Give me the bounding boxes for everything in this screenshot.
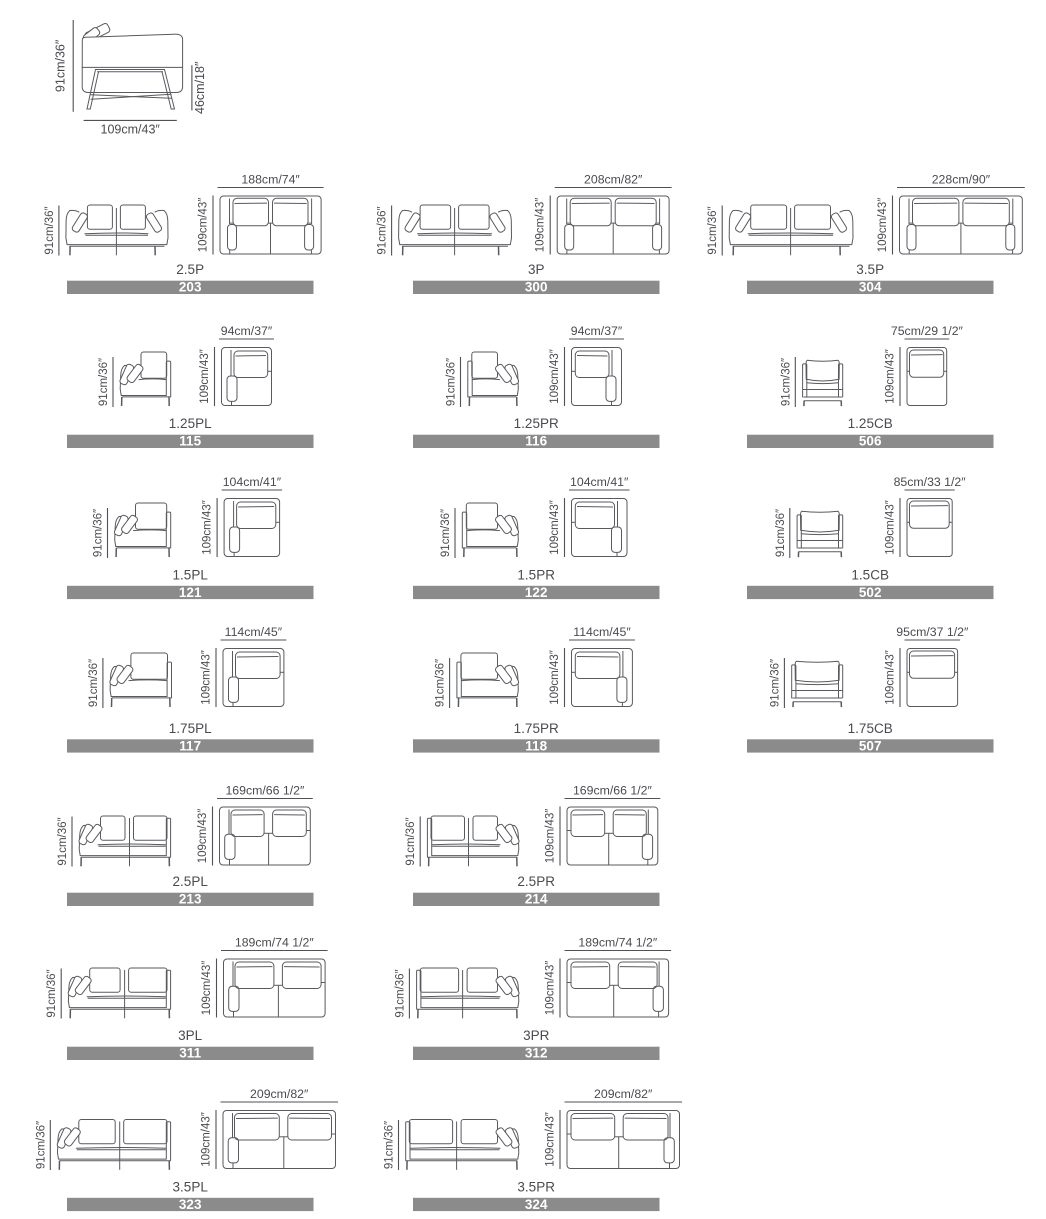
svg-text:91cm/36″: 91cm/36″ <box>446 358 458 406</box>
svg-text:109cm/43″: 109cm/43″ <box>197 809 209 864</box>
svg-text:1.25PL: 1.25PL <box>169 416 212 431</box>
svg-text:109cm/43″: 109cm/43″ <box>545 961 557 1016</box>
svg-text:91cm/36″: 91cm/36″ <box>46 969 58 1017</box>
svg-text:2.5P: 2.5P <box>176 262 204 277</box>
svg-text:91cm/36″: 91cm/36″ <box>440 509 452 557</box>
svg-text:91cm/36″: 91cm/36″ <box>780 358 792 406</box>
svg-text:109cm/43″: 109cm/43″ <box>549 500 561 555</box>
svg-text:203: 203 <box>179 280 202 295</box>
svg-text:109cm/43″: 109cm/43″ <box>101 123 161 137</box>
svg-text:3.5P: 3.5P <box>856 262 884 277</box>
svg-text:91cm/36″: 91cm/36″ <box>44 206 56 254</box>
svg-text:109cm/43″: 109cm/43″ <box>199 349 211 404</box>
svg-text:91cm/36″: 91cm/36″ <box>98 358 110 406</box>
svg-text:46cm/18″: 46cm/18″ <box>193 61 207 114</box>
svg-text:2.5PR: 2.5PR <box>517 874 555 889</box>
svg-text:121: 121 <box>179 585 202 600</box>
svg-text:109cm/43″: 109cm/43″ <box>545 1112 557 1167</box>
svg-text:91cm/36″: 91cm/36″ <box>35 1121 47 1169</box>
svg-text:116: 116 <box>525 434 547 449</box>
svg-text:228cm/90″: 228cm/90″ <box>932 173 991 187</box>
svg-text:109cm/43″: 109cm/43″ <box>549 650 561 705</box>
svg-text:91cm/36″: 91cm/36″ <box>394 969 406 1017</box>
svg-text:2.5PL: 2.5PL <box>173 874 209 889</box>
svg-text:3.5PR: 3.5PR <box>517 1179 555 1194</box>
svg-text:115: 115 <box>179 434 201 449</box>
svg-text:109cm/43″: 109cm/43″ <box>545 809 557 864</box>
svg-text:75cm/29 1/2″: 75cm/29 1/2″ <box>891 324 964 338</box>
svg-text:169cm/66 1/2″: 169cm/66 1/2″ <box>225 784 305 798</box>
svg-text:91cm/36″: 91cm/36″ <box>435 659 447 707</box>
svg-text:104cm/41″: 104cm/41″ <box>570 475 629 489</box>
svg-text:323: 323 <box>179 1197 202 1212</box>
svg-text:1.5PR: 1.5PR <box>517 567 555 582</box>
svg-text:122: 122 <box>525 585 548 600</box>
svg-text:188cm/74″: 188cm/74″ <box>241 173 300 187</box>
svg-text:3PL: 3PL <box>178 1028 203 1043</box>
svg-text:91cm/36″: 91cm/36″ <box>775 509 787 557</box>
svg-text:311: 311 <box>179 1046 201 1061</box>
svg-text:91cm/36″: 91cm/36″ <box>707 206 719 254</box>
svg-text:507: 507 <box>859 738 882 753</box>
svg-text:1.25CB: 1.25CB <box>848 416 893 431</box>
svg-text:91cm/36″: 91cm/36″ <box>377 206 389 254</box>
svg-text:3.5PL: 3.5PL <box>173 1179 209 1194</box>
svg-text:118: 118 <box>525 738 547 753</box>
svg-text:91cm/36″: 91cm/36″ <box>57 817 69 865</box>
svg-text:109cm/43″: 109cm/43″ <box>201 650 213 705</box>
svg-text:109cm/43″: 109cm/43″ <box>549 349 561 404</box>
svg-text:91cm/36″: 91cm/36″ <box>769 659 781 707</box>
svg-text:169cm/66 1/2″: 169cm/66 1/2″ <box>573 784 653 798</box>
svg-text:91cm/36″: 91cm/36″ <box>384 1121 396 1169</box>
svg-text:214: 214 <box>525 892 548 907</box>
svg-text:1.75CB: 1.75CB <box>848 721 893 736</box>
svg-text:94cm/37″: 94cm/37″ <box>221 324 273 338</box>
svg-text:312: 312 <box>525 1046 548 1061</box>
svg-text:3PR: 3PR <box>523 1028 550 1043</box>
svg-text:109cm/43″: 109cm/43″ <box>885 650 897 705</box>
svg-text:209cm/82″: 209cm/82″ <box>594 1087 653 1101</box>
svg-text:109cm/43″: 109cm/43″ <box>535 198 547 253</box>
svg-text:324: 324 <box>525 1197 548 1212</box>
svg-text:109cm/43″: 109cm/43″ <box>198 198 210 253</box>
svg-text:114cm/45″: 114cm/45″ <box>573 625 631 639</box>
svg-text:209cm/82″: 209cm/82″ <box>250 1087 309 1101</box>
svg-text:109cm/43″: 109cm/43″ <box>202 500 214 555</box>
svg-text:213: 213 <box>179 892 202 907</box>
svg-text:117: 117 <box>179 738 201 753</box>
svg-text:95cm/37 1/2″: 95cm/37 1/2″ <box>896 625 969 639</box>
svg-text:109cm/43″: 109cm/43″ <box>201 1112 213 1167</box>
svg-text:1.5PL: 1.5PL <box>173 567 209 582</box>
svg-text:91cm/36″: 91cm/36″ <box>93 509 105 557</box>
svg-text:506: 506 <box>859 434 882 449</box>
svg-text:109cm/43″: 109cm/43″ <box>885 349 897 404</box>
svg-text:94cm/37″: 94cm/37″ <box>571 324 623 338</box>
svg-text:85cm/33 1/2″: 85cm/33 1/2″ <box>894 475 967 489</box>
svg-text:91cm/36″: 91cm/36″ <box>88 659 100 707</box>
svg-text:91cm/36″: 91cm/36″ <box>54 39 68 92</box>
svg-text:104cm/41″: 104cm/41″ <box>223 475 282 489</box>
svg-text:189cm/74 1/2″: 189cm/74 1/2″ <box>235 936 315 950</box>
svg-text:1.75PL: 1.75PL <box>169 721 212 736</box>
svg-text:3P: 3P <box>528 262 545 277</box>
svg-text:1.75PR: 1.75PR <box>514 721 559 736</box>
svg-text:502: 502 <box>859 585 882 600</box>
svg-text:300: 300 <box>525 280 548 295</box>
svg-text:1.25PR: 1.25PR <box>514 416 559 431</box>
svg-text:109cm/43″: 109cm/43″ <box>201 961 213 1016</box>
svg-text:91cm/36″: 91cm/36″ <box>405 817 417 865</box>
svg-text:109cm/43″: 109cm/43″ <box>877 198 889 253</box>
svg-text:208cm/82″: 208cm/82″ <box>584 173 643 187</box>
svg-text:189cm/74 1/2″: 189cm/74 1/2″ <box>578 936 658 950</box>
svg-text:109cm/43″: 109cm/43″ <box>885 500 897 555</box>
svg-text:304: 304 <box>859 280 882 295</box>
svg-text:1.5CB: 1.5CB <box>851 567 889 582</box>
svg-text:114cm/45″: 114cm/45″ <box>225 625 283 639</box>
